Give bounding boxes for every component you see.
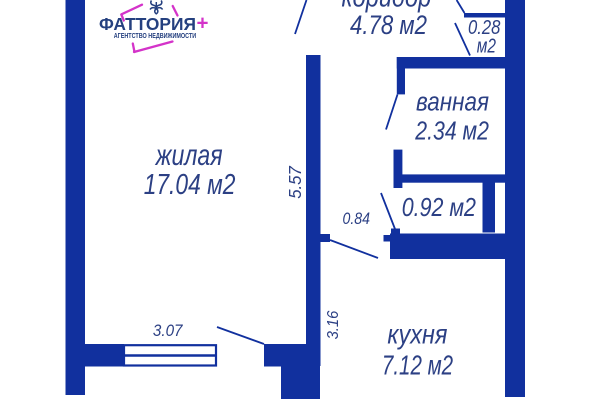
- svg-text:кухня: кухня: [387, 319, 447, 350]
- svg-text:м2: м2: [477, 36, 496, 58]
- svg-text:жилая: жилая: [154, 139, 223, 172]
- svg-text:0.92 м2: 0.92 м2: [402, 192, 477, 222]
- svg-text:0.84: 0.84: [343, 210, 371, 228]
- svg-text:3.16: 3.16: [325, 311, 342, 340]
- svg-text:5.57: 5.57: [285, 165, 305, 199]
- svg-text:2.34 м2: 2.34 м2: [414, 118, 488, 146]
- svg-text:+: +: [197, 12, 209, 35]
- svg-text:АГЕНТСТВО НЕДВИЖИМОСТИ: АГЕНТСТВО НЕДВИЖИМОСТИ: [114, 33, 197, 40]
- svg-text:7.12 м2: 7.12 м2: [382, 350, 453, 381]
- svg-text:3.07: 3.07: [153, 321, 183, 340]
- svg-text:ванная: ванная: [416, 88, 489, 116]
- svg-text:4.78 м2: 4.78 м2: [350, 10, 427, 40]
- svg-text:ФАТТОРИЯ: ФАТТОРИЯ: [99, 14, 196, 34]
- svg-text:17.04 м2: 17.04 м2: [144, 169, 236, 201]
